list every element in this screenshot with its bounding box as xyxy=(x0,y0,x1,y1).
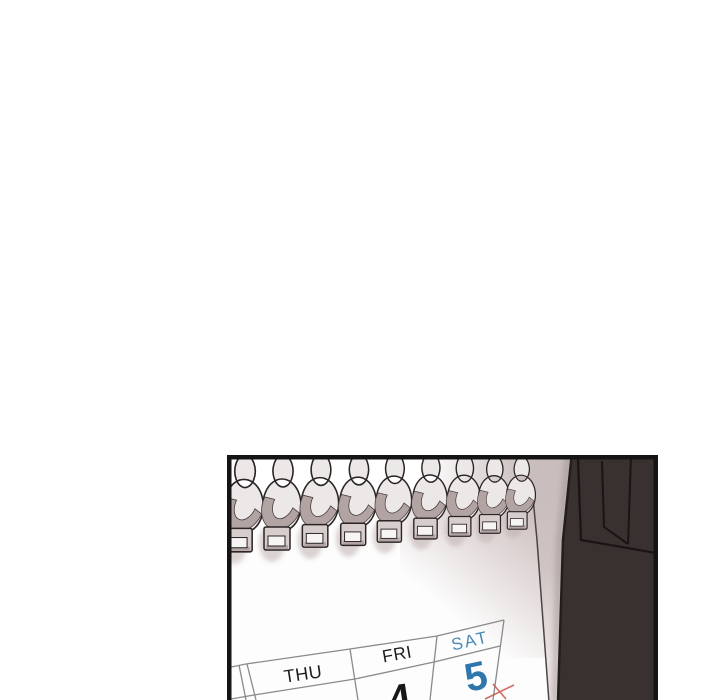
comic-page: THU FRI SAT 4 5 xyxy=(0,0,720,700)
door-body xyxy=(558,452,655,700)
comic-panel: THU FRI SAT 4 5 xyxy=(0,0,720,700)
wardrobe-door xyxy=(555,452,656,700)
